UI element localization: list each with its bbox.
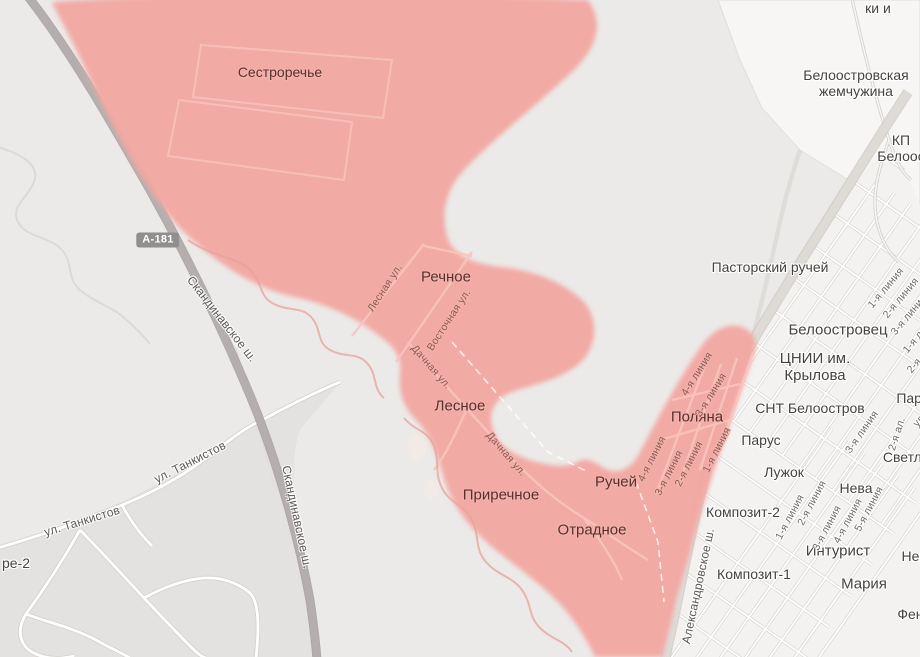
place-label: Композит-1: [717, 566, 791, 582]
place-label: Лесное: [435, 397, 486, 414]
place-label: Белоостровская жемчужина: [803, 67, 908, 99]
place-label: Пасторский ручей: [712, 259, 829, 275]
street-label: ул.: [911, 411, 920, 430]
place-label: Нева: [840, 480, 873, 496]
place-label: Сестроречье: [238, 64, 322, 80]
street-label: Скандинавское ш.: [279, 464, 315, 570]
road-shield-a181: А-181: [136, 233, 179, 248]
place-label: Белоостровец: [788, 321, 887, 338]
place-label: ЦНИИ им. Крылова: [763, 350, 868, 385]
place-label: ки и: [865, 0, 891, 16]
place-label: Светлана: [883, 449, 920, 465]
street-label: Александровское ш.: [679, 527, 717, 645]
place-label: Парус: [741, 432, 780, 448]
place-label: Нева: [902, 548, 920, 564]
street-label: Дачная ул.: [484, 429, 529, 478]
street-label: ул. Танкистов: [42, 503, 121, 539]
place-label: Лужок: [764, 464, 804, 480]
map-canvas[interactable]: СестроречьеБелоостровская жемчужинаКП Бе…: [0, 0, 920, 657]
place-label: Феникс: [897, 606, 920, 622]
place-label: Ручей: [595, 473, 637, 490]
street-label: ул. Танкистов: [152, 438, 228, 486]
street-label: 2-я ал.: [886, 416, 908, 452]
label-layer: СестроречьеБелоостровская жемчужинаКП Бе…: [0, 0, 920, 657]
street-label: Лесная ул.: [365, 262, 405, 314]
place-label: Парус: [896, 390, 920, 406]
place-label: Композит-2: [706, 504, 780, 520]
place-label: Отрадное: [558, 521, 627, 538]
place-label: СНТ Белоостров: [755, 400, 865, 416]
place-label: Мария: [841, 575, 887, 592]
street-label: Скандинавское ш.: [184, 273, 260, 364]
street-label: 1-я линия: [701, 425, 734, 474]
street-label: Восточная ул.: [425, 287, 474, 353]
place-label: Приречное: [463, 486, 539, 503]
place-label: Речное: [421, 268, 471, 285]
place-label: КП Белоос: [877, 132, 920, 164]
place-label: ре-2: [2, 555, 30, 571]
